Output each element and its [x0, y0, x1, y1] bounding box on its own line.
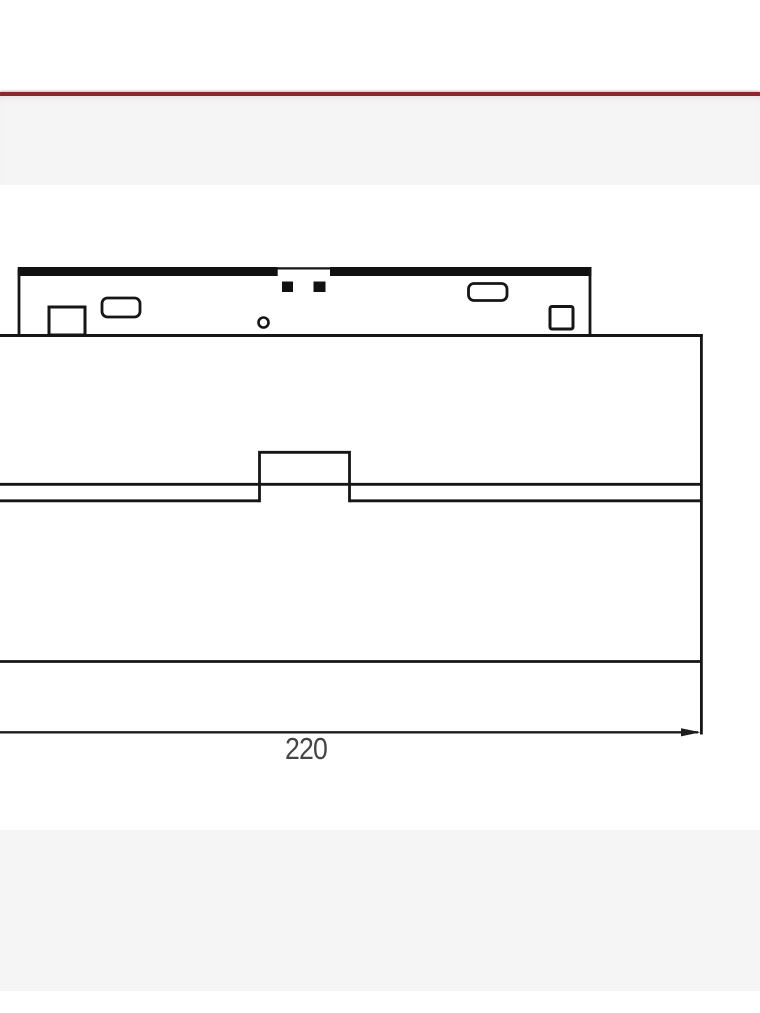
page-background: 220 — [0, 0, 760, 1013]
terminal-square-left — [49, 307, 85, 335]
led-indicator-2 — [314, 282, 326, 293]
device-top-strip — [18, 267, 592, 335]
terminal-square-right — [550, 307, 573, 330]
dimension-label: 220 — [277, 734, 335, 764]
strip-top-bar-left — [18, 267, 278, 276]
device-body — [0, 334, 703, 735]
technical-drawing — [0, 0, 760, 1013]
dimension-arrowhead-right — [681, 728, 701, 736]
terminal-slot-right — [469, 284, 508, 301]
dimension-annotation — [0, 728, 701, 736]
mounting-tab — [260, 452, 350, 502]
adjustment-hole — [259, 318, 269, 328]
strip-top-bar-right — [330, 267, 592, 276]
terminal-slot-left — [102, 298, 140, 317]
led-indicator-1 — [282, 282, 293, 293]
